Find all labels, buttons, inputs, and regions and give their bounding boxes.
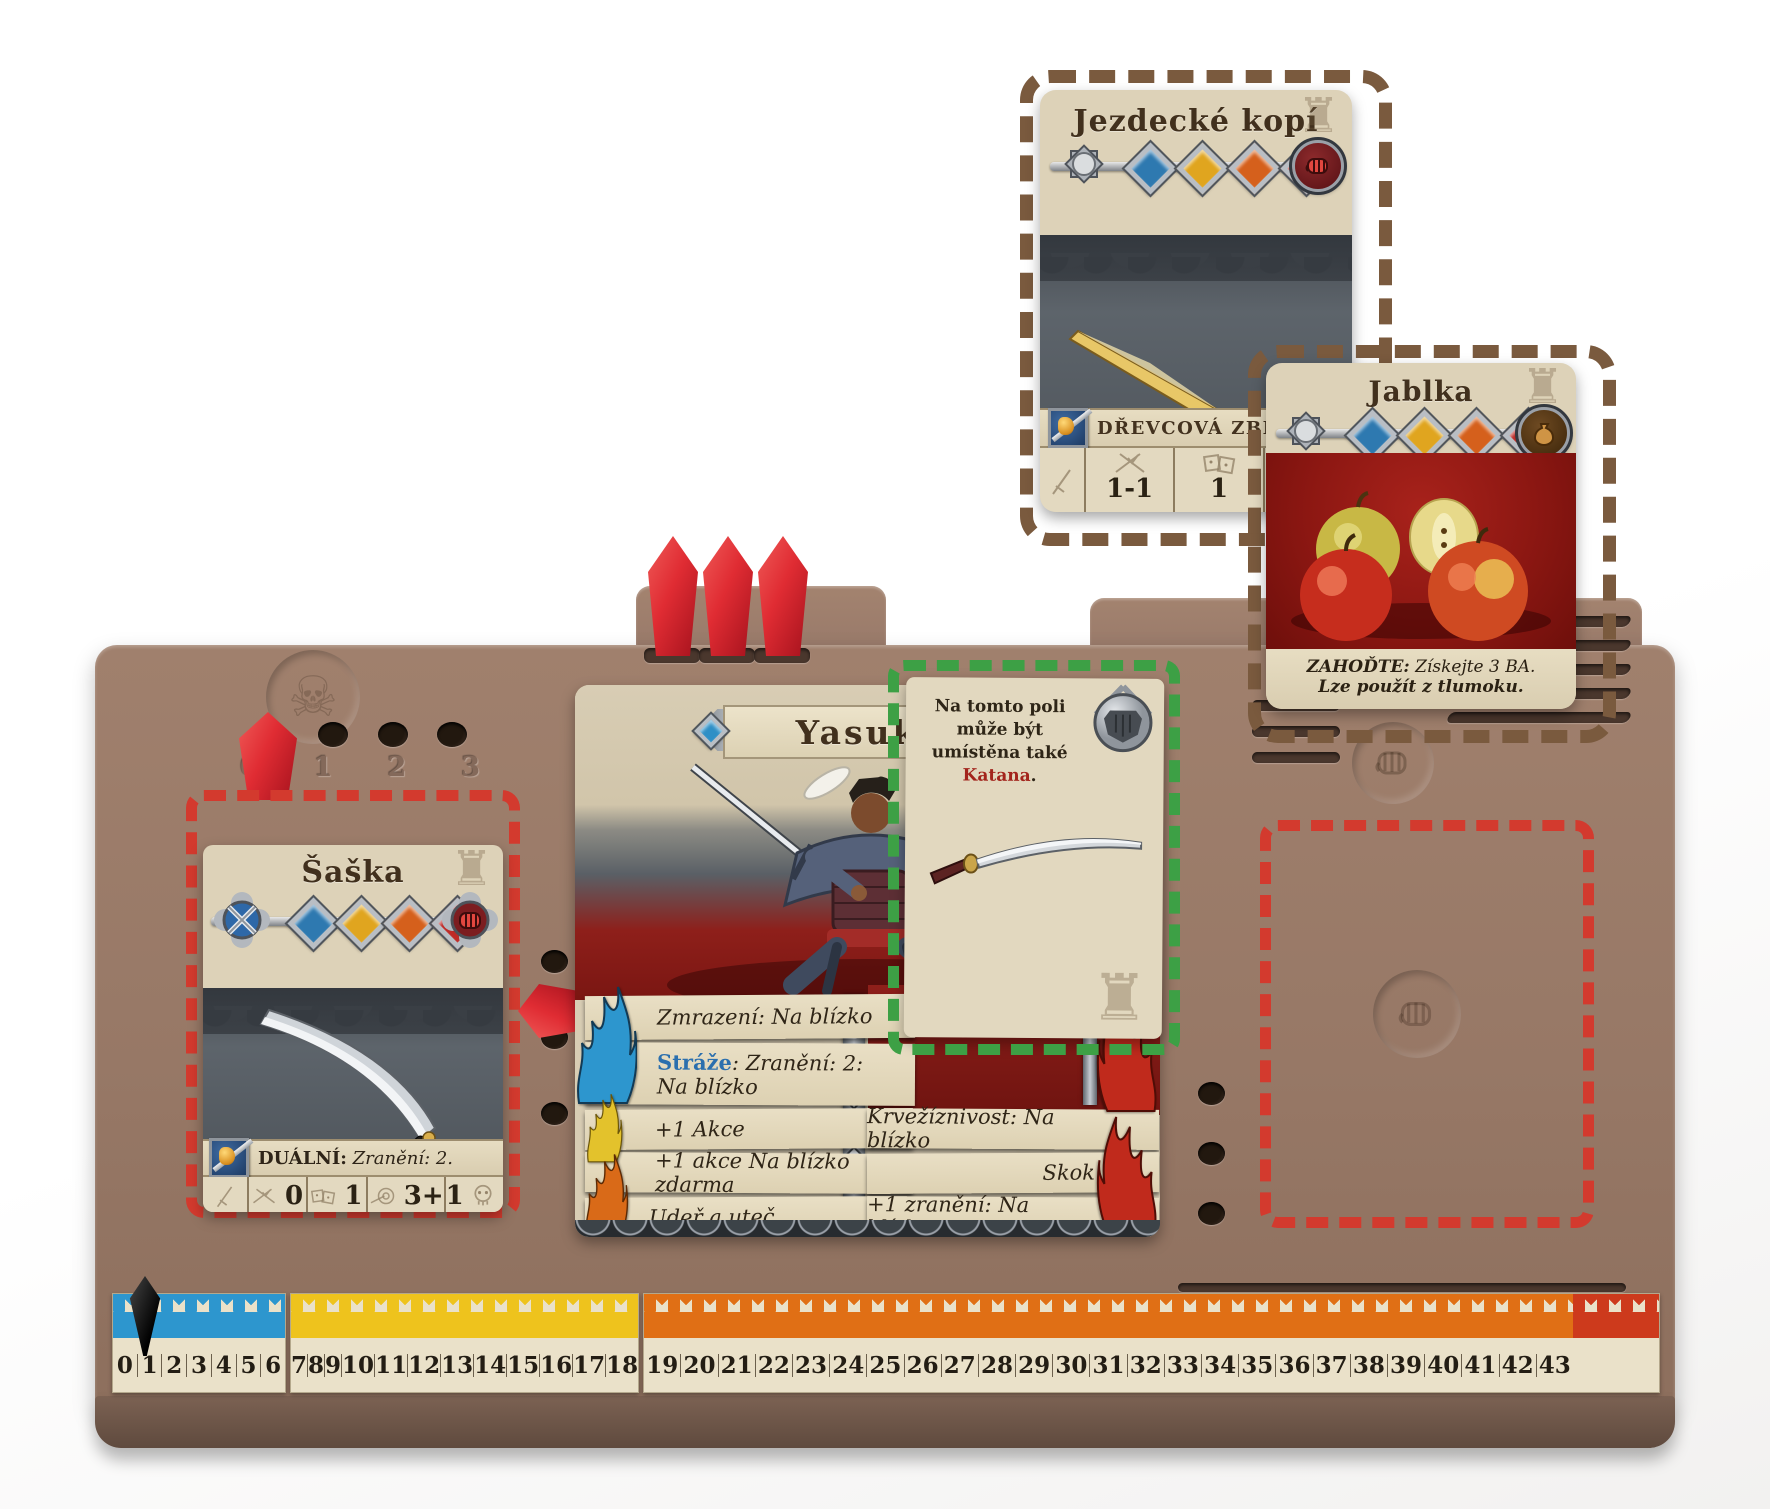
- red-token-1[interactable]: [648, 536, 698, 656]
- track-number: 3: [186, 1354, 211, 1377]
- board-hole[interactable]: [541, 950, 568, 973]
- wound-hole-3[interactable]: [437, 722, 467, 747]
- track-strip-orange: 1920212223242526272829303132333435363738…: [643, 1293, 1660, 1393]
- track-number: 20: [680, 1354, 717, 1377]
- track-number: 30: [1052, 1354, 1089, 1377]
- card-saska[interactable]: ♜ Šaška: [203, 845, 503, 1212]
- track-number: 21: [718, 1354, 755, 1377]
- track-number: 4: [211, 1354, 236, 1377]
- long-groove: [1178, 1283, 1626, 1292]
- gem-blue: [287, 897, 339, 949]
- track-number: 32: [1127, 1354, 1164, 1377]
- board-hole[interactable]: [1198, 1202, 1225, 1225]
- wound-number: 2: [387, 752, 406, 783]
- track-number: 40: [1424, 1354, 1461, 1377]
- board-hole[interactable]: [1198, 1082, 1225, 1105]
- track-number: 10: [341, 1354, 374, 1377]
- katana-slot-outline[interactable]: [888, 660, 1180, 1055]
- track-number: 27: [941, 1354, 978, 1377]
- effect-keyword: ZAHOĎTE:: [1307, 657, 1410, 677]
- track-number: 34: [1201, 1354, 1238, 1377]
- track-number: 43: [1536, 1354, 1573, 1377]
- flame-red-icon: [1096, 1115, 1160, 1233]
- vent-slot: [1252, 752, 1340, 763]
- star-socket-icon: [1058, 138, 1110, 194]
- board-bottom-edge: [95, 1396, 1675, 1448]
- track-number: 42: [1499, 1354, 1536, 1377]
- wound-hole-2[interactable]: [378, 722, 408, 747]
- track-number: 7: [291, 1354, 307, 1377]
- track-number: 33: [1164, 1354, 1201, 1377]
- stat-attack: 1-1: [1084, 448, 1173, 512]
- gem-blue: [1124, 142, 1176, 194]
- board-hole[interactable]: [541, 1102, 568, 1125]
- sword-icon: [1040, 448, 1084, 512]
- card-art-apples: [1266, 453, 1576, 649]
- track-number: 19: [644, 1354, 680, 1377]
- track-number: 9: [324, 1354, 341, 1377]
- wound-hole-1[interactable]: [318, 722, 348, 747]
- stat-range: 3+: [366, 1177, 444, 1212]
- track-number: 39: [1387, 1354, 1424, 1377]
- wound-number: 3: [461, 752, 480, 783]
- track-number: 2: [161, 1354, 186, 1377]
- track-number: 31: [1089, 1354, 1126, 1377]
- track-number: 18: [605, 1354, 638, 1377]
- effect-text: Získejte 3 BA.: [1410, 657, 1536, 677]
- tower-watermark-icon: ♜: [450, 845, 493, 893]
- fire-track: 0123456 789101112131415161718 1920212223…: [112, 1293, 1660, 1393]
- ability-band: DUÁLNÍ: Zranění: 2.: [203, 1139, 503, 1177]
- track-number: 37: [1313, 1354, 1350, 1377]
- ability-text: Zranění: 2.: [347, 1148, 453, 1169]
- track-number: 28: [978, 1354, 1015, 1377]
- sword-icon: [203, 1177, 247, 1212]
- no-bell-icon: [1048, 408, 1088, 448]
- flame-blue-icon: [575, 985, 637, 1105]
- wound-number: 1: [314, 752, 333, 783]
- track-number: 13: [440, 1354, 473, 1377]
- track-number: 38: [1350, 1354, 1387, 1377]
- stat-attack: 0: [247, 1177, 306, 1212]
- stat-defense: 1: [306, 1177, 365, 1212]
- track-number: 5: [236, 1354, 261, 1377]
- gem-orange: [383, 897, 435, 949]
- weapon-stats: 0 1 3+ 1: [203, 1177, 503, 1212]
- track-number: 12: [407, 1354, 440, 1377]
- card-effect-text: ZAHOĎTE: Získejte 3 BA. Lze použít z tlu…: [1266, 649, 1576, 709]
- fist-badge-icon: [1292, 140, 1344, 192]
- gem-yellow: [1176, 142, 1228, 194]
- ability-plaque: +1 Akce: [585, 1108, 913, 1150]
- card-jablka[interactable]: ♜ Jablka: [1266, 363, 1576, 709]
- track-number: 11: [374, 1354, 407, 1377]
- track-number: 24: [829, 1354, 866, 1377]
- gem-orange: [1228, 142, 1280, 194]
- straze-keyword: Stráže: [657, 1049, 732, 1074]
- track-number: 16: [539, 1354, 572, 1377]
- fist-icon: [1369, 739, 1417, 787]
- track-number: 23: [792, 1354, 829, 1377]
- track-number: 36: [1275, 1354, 1312, 1377]
- track-number: 29: [1015, 1354, 1052, 1377]
- game-table: ☠ 0123 ♜ Jezdecké kopí: [0, 0, 1770, 1509]
- track-strip-yellow: 789101112131415161718: [290, 1293, 639, 1393]
- no-bell-icon: [209, 1138, 249, 1178]
- track-number: 15: [506, 1354, 539, 1377]
- track-number: 41: [1461, 1354, 1498, 1377]
- track-number: 26: [904, 1354, 941, 1377]
- dual-wield-icon: [211, 889, 273, 955]
- effect-line2: Lze použít z tlumoku.: [1266, 677, 1576, 697]
- gem-yellow: [335, 897, 387, 949]
- red-token-2[interactable]: [703, 536, 753, 656]
- fist-badge-icon: [439, 889, 501, 955]
- track-number: 35: [1238, 1354, 1275, 1377]
- track-number: 25: [866, 1354, 903, 1377]
- card-bottom-trim: [575, 1220, 1160, 1237]
- track-number: 6: [260, 1354, 285, 1377]
- pouch-badge-icon: [1518, 407, 1570, 459]
- tower-watermark-icon: ♜: [1297, 92, 1340, 140]
- track-number: 14: [473, 1354, 506, 1377]
- track-number: 8: [307, 1354, 324, 1377]
- board-hole[interactable]: [1198, 1142, 1225, 1165]
- track-number: 17: [572, 1354, 605, 1377]
- track-number: 1: [137, 1354, 162, 1377]
- stat-wounds: 1: [444, 1177, 503, 1212]
- ability-keyword: DUÁLNÍ:: [258, 1148, 347, 1169]
- track-number: 22: [755, 1354, 792, 1377]
- tower-watermark-icon: ♜: [1521, 363, 1564, 411]
- track-number: 0: [113, 1354, 137, 1377]
- red-token-3[interactable]: [758, 536, 808, 656]
- fist-emblem: [1373, 970, 1461, 1058]
